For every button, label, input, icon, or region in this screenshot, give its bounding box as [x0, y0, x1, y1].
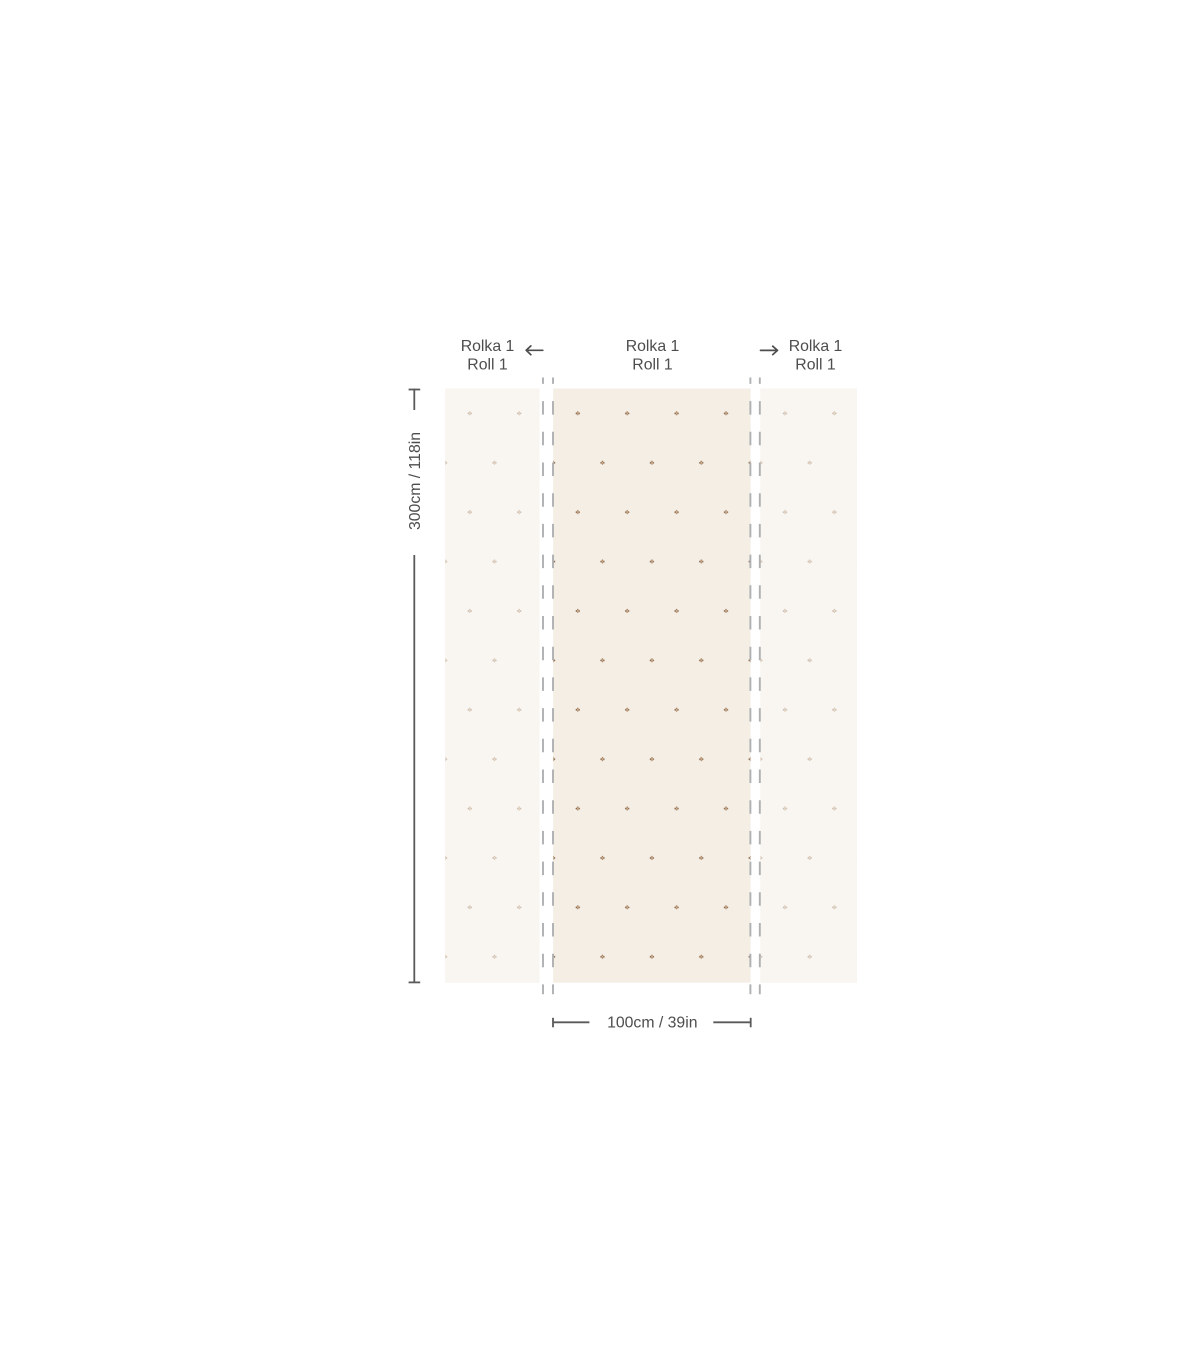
svg-text:Roll 1: Roll 1: [795, 356, 836, 373]
svg-text:Rolka 1: Rolka 1: [789, 338, 843, 355]
svg-text:Rolka 1: Rolka 1: [461, 338, 515, 355]
svg-text:Roll 1: Roll 1: [632, 356, 673, 373]
svg-text:100cm / 39in: 100cm / 39in: [607, 1014, 697, 1031]
svg-text:Roll 1: Roll 1: [467, 356, 508, 373]
svg-text:300cm / 118in: 300cm / 118in: [407, 432, 424, 530]
svg-text:Rolka 1: Rolka 1: [626, 338, 680, 355]
